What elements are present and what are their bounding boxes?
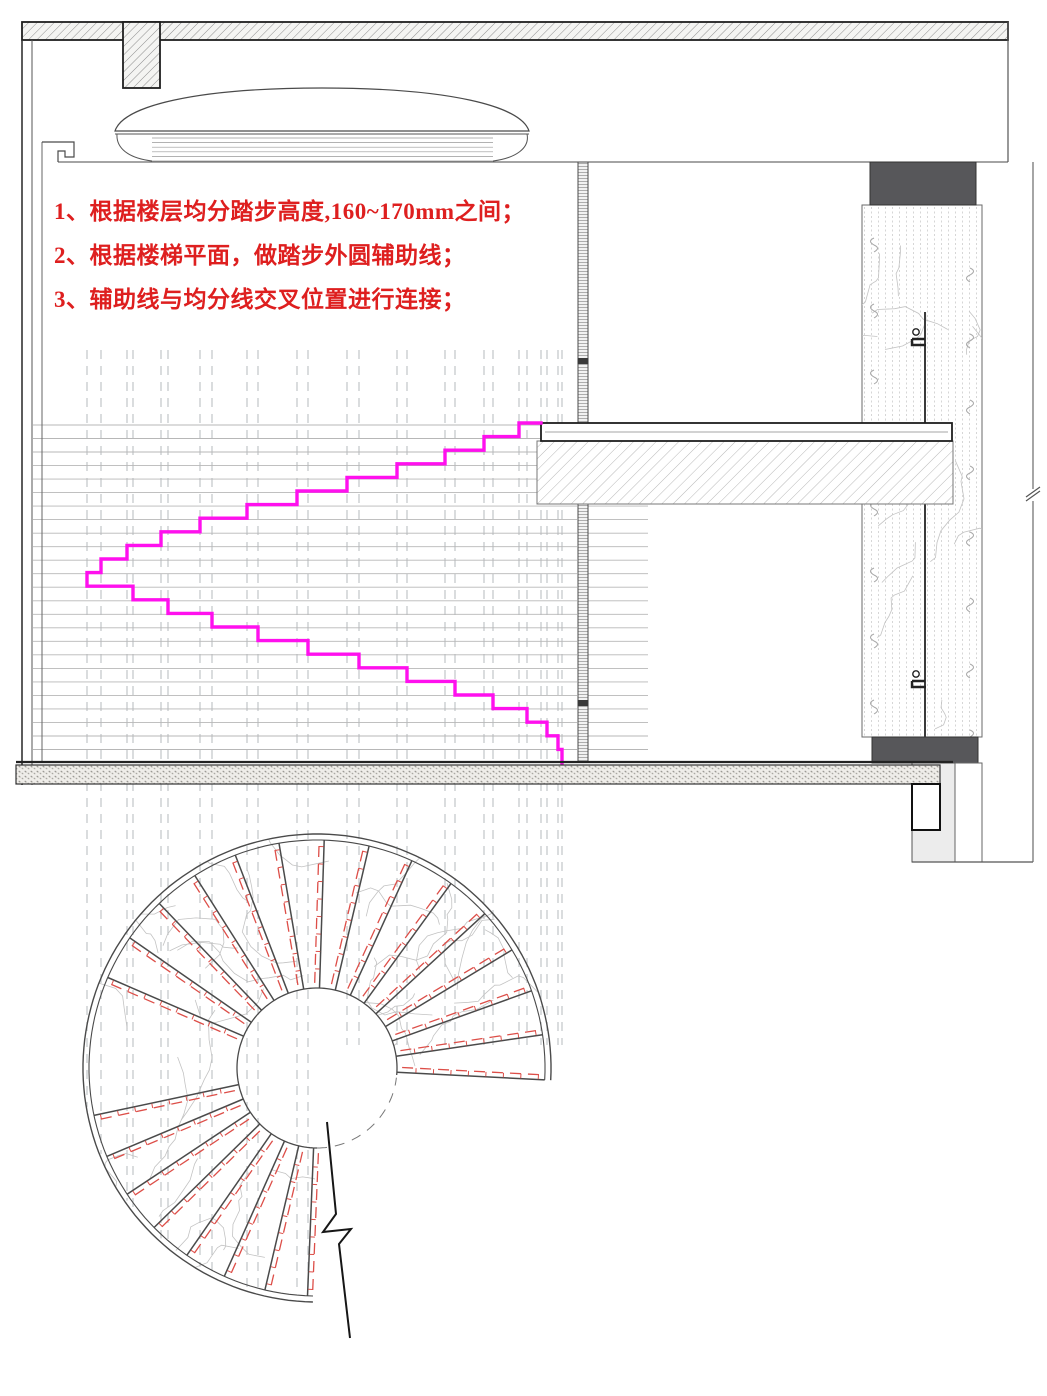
- top-slab: [22, 22, 1008, 40]
- floor-screed-band: [16, 765, 940, 784]
- column-capital: [870, 162, 976, 205]
- plan-treads: [94, 840, 545, 1296]
- notes: 1、根据楼层均分踏步高度,160~170mm之间； 2、根据楼梯平面，做踏步外圆…: [54, 190, 525, 322]
- mid-floor-slab: [537, 423, 953, 504]
- plan-break-line: [323, 1122, 351, 1338]
- plan-inner-circle: [237, 988, 397, 1148]
- beam-pocket: [912, 784, 940, 830]
- left-wall: [22, 40, 42, 785]
- hanger-stub: [123, 22, 160, 88]
- column-base: [872, 737, 978, 763]
- right-boundary: [1008, 22, 1040, 862]
- note-line-1: 1、根据楼层均分踏步高度,160~170mm之间；: [54, 190, 525, 234]
- note-line-2: 2、根据楼梯平面，做踏步外圆辅助线；: [54, 234, 525, 278]
- dome-light-fixture: [115, 88, 529, 161]
- stair-step-profile: [87, 423, 562, 763]
- note-line-3: 3、辅助线与均分线交叉位置进行连接；: [54, 278, 525, 322]
- cornice-molding: [42, 142, 74, 162]
- cad-sheet: 1、根据楼层均分踏步高度,160~170mm之间； 2、根据楼梯平面，做踏步外圆…: [0, 0, 1047, 1396]
- plan-view: [82, 790, 551, 1338]
